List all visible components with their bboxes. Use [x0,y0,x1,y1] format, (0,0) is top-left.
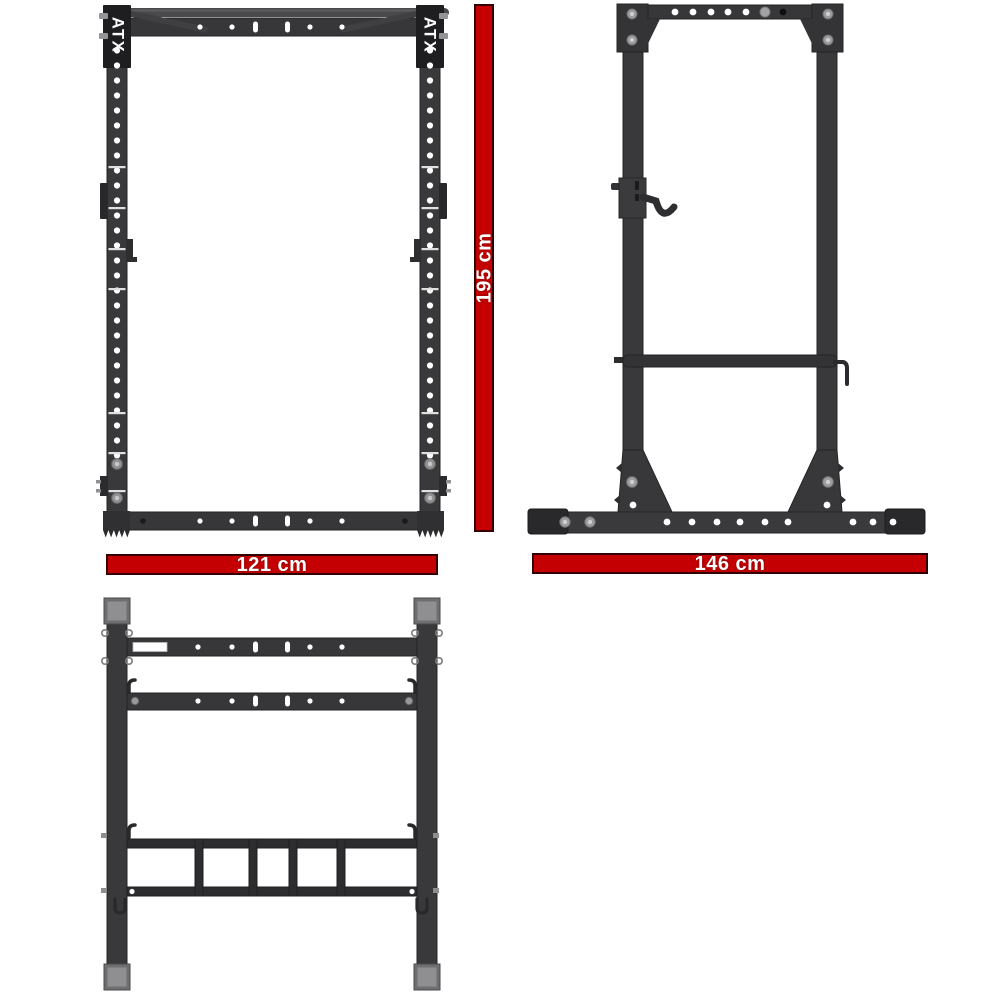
height-dimension-label: 195 cm [474,233,494,304]
front-view-illustration: ATX ATX [95,0,465,545]
side-frame [617,4,843,460]
width-dimension-bar: 121 cm [106,554,438,575]
pullup-bar-assembly [109,8,449,36]
legs [101,598,442,990]
depth-dimension-bar: 146 cm [532,553,928,574]
depth-dimension-label: 146 cm [695,554,766,574]
safety-bar [614,355,847,384]
j-hook [611,178,674,218]
height-dimension-bar: 195 cm [474,4,494,532]
upright-left [96,5,137,530]
ladder-assembly [127,839,417,896]
atx-power-rack-dimension-diagram: ATX ATX [0,0,1000,1000]
crossmember-rear [127,693,417,710]
u-hooks [115,899,427,913]
width-dimension-label: 121 cm [237,555,308,575]
base-foot-assembly [528,450,925,534]
foot-teeth-right [417,530,444,538]
brand-label-plate [133,643,167,652]
base-crossmember [103,511,444,538]
top-view-illustration [95,590,445,998]
upright-right [410,5,451,530]
brand-badge-left: ATX [109,17,127,53]
side-view-illustration [522,0,932,545]
crossmember-front [127,638,417,656]
brand-badge-right: ATX [421,17,439,53]
foot-teeth-left [103,530,130,538]
